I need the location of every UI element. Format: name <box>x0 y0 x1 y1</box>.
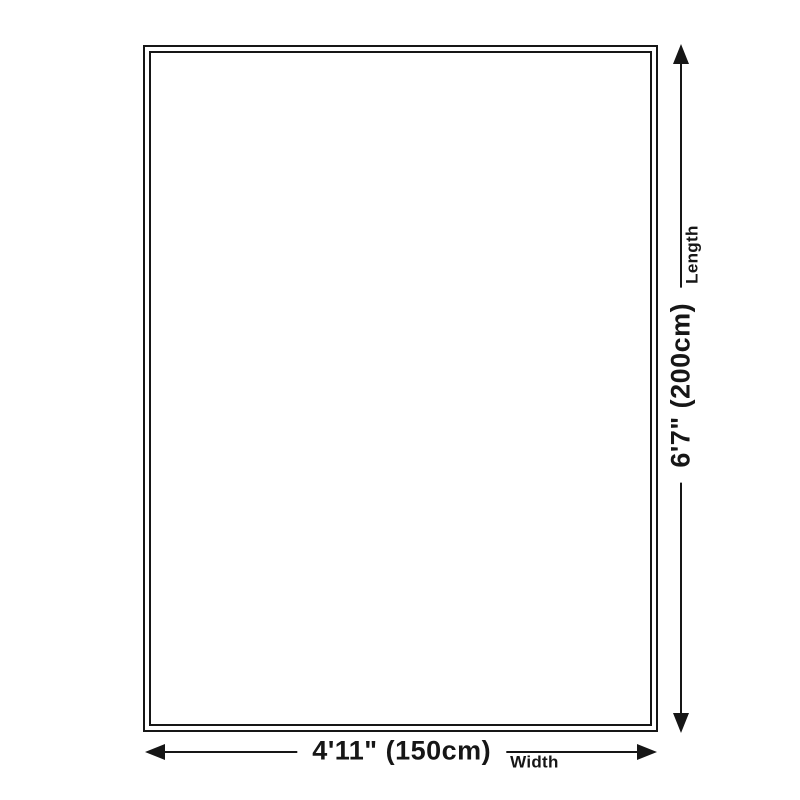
length-dimension-label: 6'7" (200cm) Length <box>666 225 697 482</box>
width-axis-label: Width <box>510 752 559 772</box>
length-axis-label: Length <box>682 225 702 283</box>
dimension-diagram: 6'7" (200cm) Length 4'11" (150cm) Width <box>0 0 800 800</box>
width-value: 4'11" (150cm) <box>297 736 506 767</box>
rug-outline <box>143 45 658 732</box>
rug-inner-border <box>149 51 652 726</box>
arrow-down-icon <box>673 713 689 733</box>
width-dimension-label: 4'11" (150cm) Width <box>297 736 558 767</box>
arrow-up-icon <box>673 44 689 64</box>
length-value: 6'7" (200cm) <box>666 288 697 483</box>
arrow-left-icon <box>145 744 165 760</box>
arrow-right-icon <box>637 744 657 760</box>
